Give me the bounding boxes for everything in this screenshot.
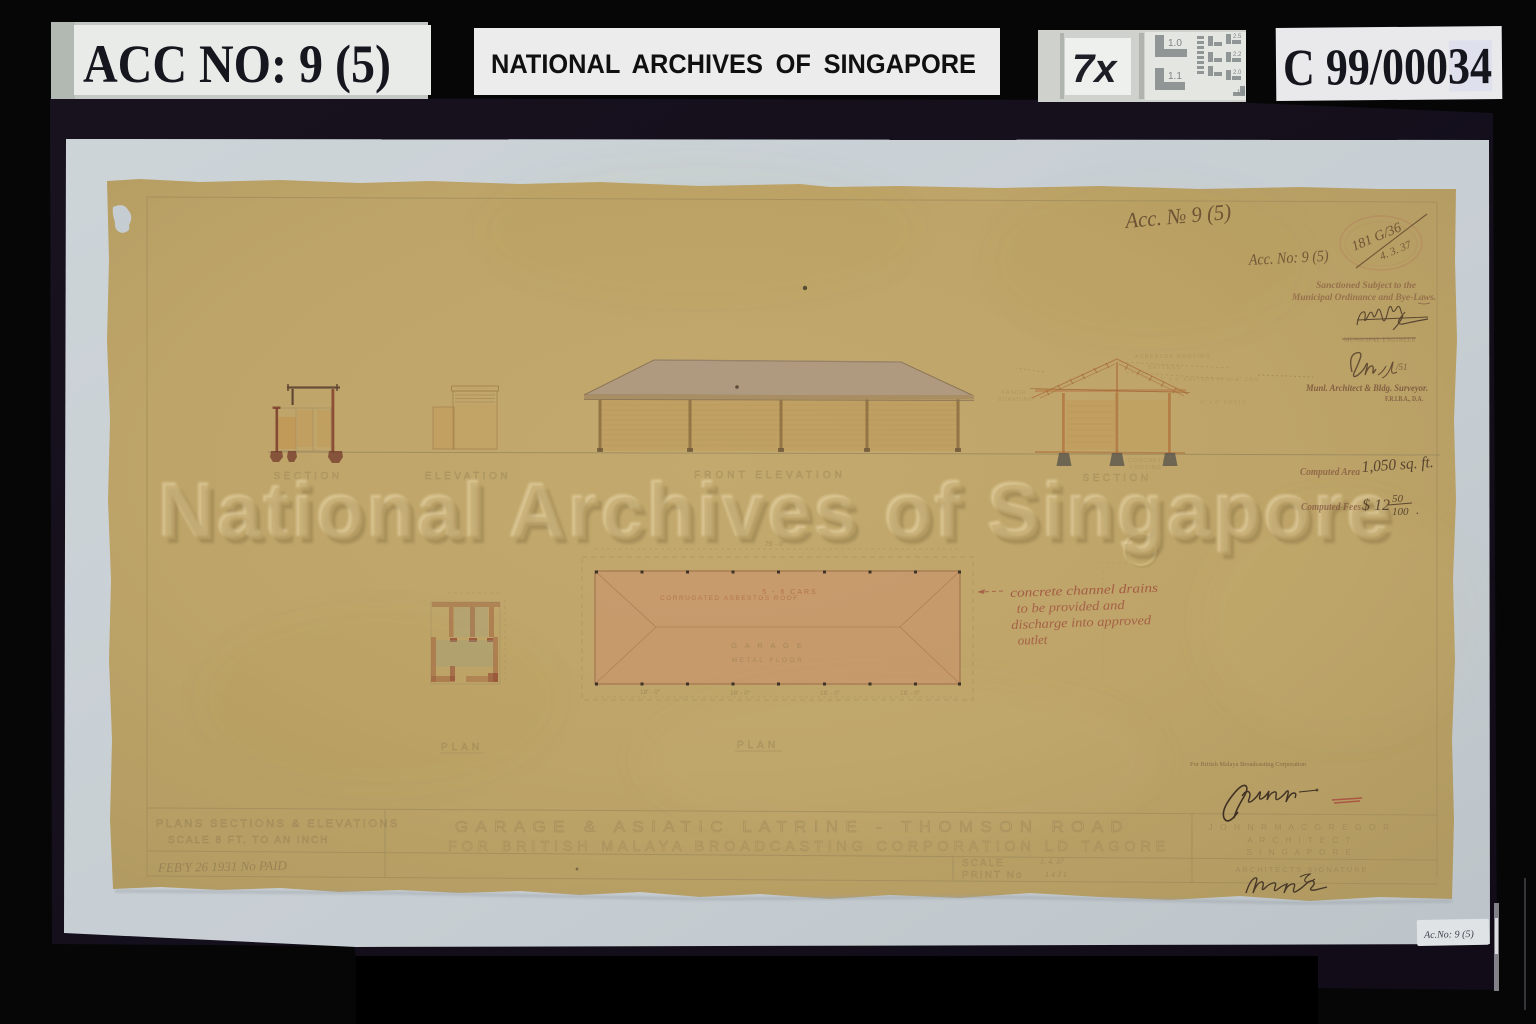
svg-text:FOR BRITISH MALAYA BROADCAS: FOR BRITISH MALAYA BROADCASTING CORPORAT… [448, 838, 1170, 855]
svg-text:Computed Fees: Computed Fees [1301, 502, 1361, 513]
svg-text:1.1: 1.1 [1168, 71, 1182, 82]
svg-text:2.2: 2.2 [1233, 52, 1242, 58]
svg-text:1.0: 1.0 [1168, 38, 1182, 49]
svg-text:/51: /51 [1395, 362, 1408, 372]
svg-text:CONCRETE: CONCRETE [1128, 458, 1167, 464]
svg-text:PLANS SECTIONS & ELEVATIONS: PLANS SECTIONS & ELEVATIONS [156, 818, 400, 830]
svg-text:GARAGE & ASIATIC LATRINE -: GARAGE & ASIATIC LATRINE - THOMSON ROAD [455, 819, 1130, 836]
svg-text:2.5: 2.5 [1233, 34, 1242, 40]
svg-text:outlet: outlet [1017, 632, 1047, 648]
svg-text:NATIONAL ARCHIVES OF SINGAPORE: NATIONAL ARCHIVES OF SINGAPORE [491, 49, 976, 79]
svg-text:18' - 0": 18' - 0" [730, 690, 751, 697]
svg-text:Munl. Architect & Bldg. Survey: Munl. Architect & Bldg. Surveyor. [1305, 384, 1428, 394]
svg-text:.: . [1416, 502, 1419, 517]
svg-text:2.0: 2.0 [1233, 70, 1242, 76]
svg-text:S I N G A P O R E: S I N G A P O R E [1247, 848, 1354, 857]
svg-text:18' - 0": 18' - 0" [900, 690, 921, 697]
svg-text:ARCHITECTS SIGNATURE: ARCHITECTS SIGNATURE [1235, 865, 1368, 874]
svg-text:2" x 4" RAFTERS AT 2'-0" CRS: 2" x 4" RAFTERS AT 2'-0" CRS [1160, 377, 1259, 383]
svg-text:1.8: 1.8 [1237, 90, 1246, 96]
svg-text:J O H N R M A C G R E G O R: J O H N R M A C G R E G O R [1208, 822, 1391, 832]
svg-text:BOARDING: BOARDING [998, 397, 1034, 403]
svg-text:Computed Area: Computed Area [1300, 467, 1360, 478]
svg-text:CORRUGATED ASBESTOS ROOF: CORRUGATED ASBESTOS ROOF [660, 595, 799, 602]
svg-text:SCALE: SCALE [962, 858, 1005, 869]
svg-text:National Archives of Singapore: National Archives of Singapore [160, 468, 1392, 556]
svg-text:PLAN: PLAN [737, 740, 779, 751]
svg-text:$ 12: $ 12 [1362, 497, 1390, 514]
svg-text:For British Malaya Broadcastin: For British Malaya Broadcasting Corporat… [1190, 761, 1307, 768]
svg-text:F.R.I.B.A., D.A.: F.R.I.B.A., D.A. [1385, 394, 1423, 403]
svg-text:MUNICIPAL ENGINEER: MUNICIPAL ENGINEER [1344, 336, 1416, 344]
svg-text:7x: 7x [1072, 47, 1118, 91]
svg-text:PLAN: PLAN [441, 742, 483, 753]
svg-text:A R C H I T E C T: A R C H I T E C T [1247, 836, 1352, 845]
svg-text:1. 4. 37: 1. 4. 37 [1040, 857, 1065, 866]
svg-text:ACC NO: 9 (5): ACC NO: 9 (5) [83, 34, 391, 94]
svg-text:Sanctioned Subject to the: Sanctioned Subject to the [1316, 281, 1417, 291]
svg-text:50: 50 [1392, 493, 1404, 505]
svg-text:FASCIA: FASCIA [1002, 390, 1026, 396]
svg-text:C 99/00034: C 99/00034 [1283, 38, 1492, 97]
svg-text:FEB'Y 26 1931 No PAID: FEB'Y 26 1931 No PAID [157, 858, 288, 875]
svg-text:18' - 0": 18' - 0" [820, 690, 841, 697]
svg-text:1 4 3 1: 1 4 3 1 [1045, 870, 1067, 879]
svg-text:18' - 0": 18' - 0" [640, 689, 661, 696]
svg-text:Municipal Ordinance and Bye-La: Municipal Ordinance and Bye-Laws. [1291, 293, 1436, 303]
svg-text:G A R A G E: G A R A G E [731, 641, 805, 650]
svg-text:4" x 4" POSTS: 4" x 4" POSTS [1200, 400, 1246, 406]
svg-text:ASBESTOS ROOFING: ASBESTOS ROOFING [1135, 354, 1211, 360]
svg-text:SCALE 8 FT. TO AN INCH: SCALE 8 FT. TO AN INCH [168, 835, 329, 846]
svg-text:PRINT No: PRINT No [962, 870, 1023, 881]
svg-text:METAL FLOOR: METAL FLOOR [732, 657, 805, 664]
svg-text:BATTENS: BATTENS [1148, 365, 1181, 371]
svg-text:100: 100 [1392, 506, 1409, 518]
svg-text:Ac.No: 9 (5): Ac.No: 9 (5) [1423, 929, 1475, 941]
